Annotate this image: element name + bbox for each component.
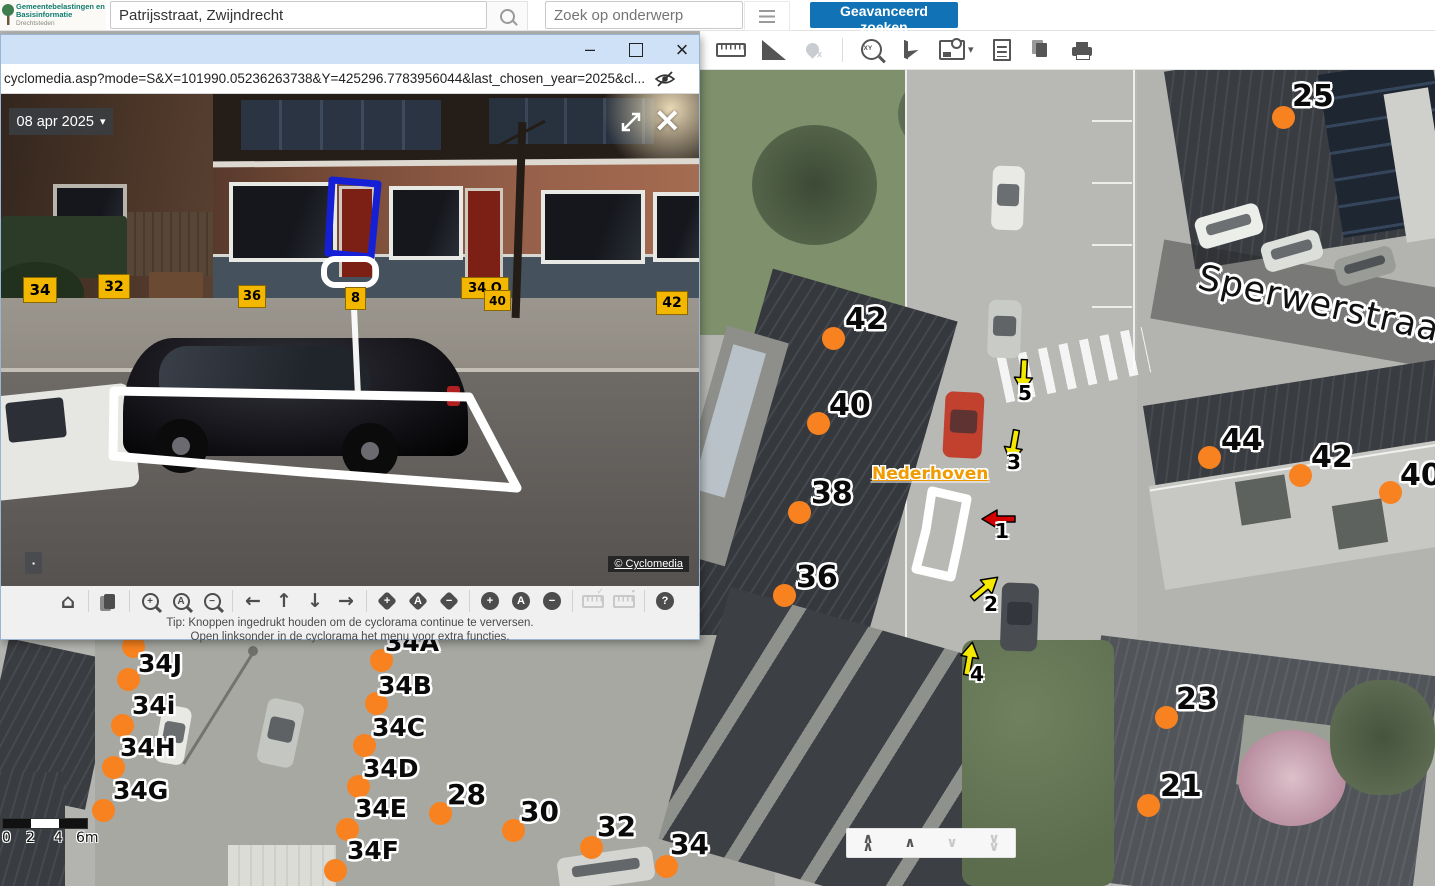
contrast-minus-button[interactable]: − (541, 589, 563, 613)
scalebar-label: 0 (2, 830, 11, 846)
zoom-out-button[interactable]: − (201, 589, 223, 613)
search-icon (500, 9, 515, 24)
toolbar-separator (88, 590, 89, 612)
house-number-tag[interactable]: 32 (98, 274, 130, 299)
map-marker-label: 40 (829, 391, 871, 421)
map-marker-label: 34B (378, 673, 432, 698)
map-marker-dot[interactable] (117, 668, 140, 691)
map-scalebar: 0246m (2, 818, 88, 845)
advanced-search-button[interactable]: Geavanceerd zoeken (810, 2, 958, 28)
map-marker-label: 23 (1176, 685, 1218, 715)
page-first-button[interactable]: ∧∧ (862, 835, 873, 851)
arrow-number-label: 2 (984, 592, 998, 616)
measure-distance-button[interactable] (716, 37, 746, 63)
maximize-icon (629, 43, 643, 57)
map-marker-label: 34F (347, 838, 399, 863)
popup-url[interactable]: cyclomedia.asp?mode=S&X=101990.052362637… (1, 71, 652, 86)
top-bar: Gemeentebelastingen enBasisinformatie Dr… (0, 0, 1435, 31)
map-marker-label: 34J (138, 651, 182, 676)
scalebar-label: 6m (76, 830, 99, 846)
toolbar-separator (366, 590, 367, 612)
map-marker-dot[interactable] (1198, 446, 1221, 469)
help-button[interactable]: ? (654, 589, 676, 613)
cyclomedia-copyright-link[interactable]: © Cyclomedia (608, 556, 689, 572)
photo-annotations (1, 94, 699, 586)
bing-maps-button[interactable] (899, 37, 923, 63)
minimize-button[interactable]: – (579, 39, 601, 61)
map-marker-label: 21 (1160, 772, 1202, 802)
toolbar-separator (842, 38, 843, 62)
map-marker-label: 34 (670, 831, 709, 859)
chevron-down-icon: ▾ (100, 115, 106, 128)
map-pager: ∧∧∧∨∨∨ (846, 828, 1016, 858)
zoom-auto-button[interactable]: A (170, 589, 192, 613)
brightness-auto-button[interactable]: A (407, 589, 429, 613)
map-marker-dot[interactable] (1379, 481, 1402, 504)
map-marker-dot[interactable] (92, 799, 115, 822)
map-marker-label: 42 (845, 305, 887, 335)
report-button[interactable] (990, 37, 1014, 63)
page-up-button[interactable]: ∧ (904, 839, 915, 847)
house-number-tag[interactable]: 8 (345, 287, 366, 310)
print-button[interactable] (1070, 37, 1094, 63)
arrow-number-label: 3 (1007, 450, 1021, 474)
list-icon (759, 10, 775, 23)
popup-url-bar: cyclomedia.asp?mode=S&X=101990.052362637… (1, 64, 699, 94)
toolbar-separator (469, 590, 470, 612)
scalebar-label: 4 (54, 830, 63, 846)
tip-line-2: Open linksonder in de cyclorama het menu… (1, 631, 699, 645)
annotation-parking-polygon (113, 391, 517, 488)
contrast-plus-button[interactable]: + (479, 589, 501, 613)
topic-search-input[interactable] (545, 1, 743, 29)
map-marker-label: 34H (120, 735, 176, 760)
streetview-close-icon[interactable]: × (653, 100, 682, 140)
map-marker-dot[interactable] (1289, 464, 1312, 487)
eye-slash-icon[interactable] (654, 70, 676, 88)
annotation-white-rounded-rect (324, 259, 376, 285)
tip-line-1: Tip: Knoppen ingedrukt houden om de cycl… (1, 617, 699, 631)
popup-titlebar[interactable]: – × (1, 35, 699, 64)
map-toolbar: xXY▾ (700, 30, 1435, 70)
maximize-button[interactable] (625, 39, 647, 61)
scalebar-label: 2 (26, 830, 35, 846)
house-number-tag[interactable]: 34 (23, 277, 57, 303)
map-marker-label: 32 (597, 813, 636, 841)
map-marker-dot[interactable] (1137, 794, 1160, 817)
cyclorama-menu-button[interactable]: ▪ (25, 552, 42, 574)
look-right-button[interactable]: → (335, 589, 357, 613)
measure-confirm-button[interactable]: ✓ (582, 589, 604, 613)
search-button[interactable] (487, 1, 528, 31)
map-marker-label: 25 (1292, 82, 1334, 112)
toolbar-separator (572, 590, 573, 612)
app-logo: Gemeentebelastingen enBasisinformatie Dr… (0, 0, 106, 30)
recording-date-dropdown[interactable]: 08 apr 2025 ▾ (9, 108, 113, 135)
map-marker-dot[interactable] (822, 327, 845, 350)
map-marker-label: 44 (1221, 426, 1263, 456)
map-marker-label: 34G (113, 778, 168, 803)
map-marker-label: 34i (132, 693, 175, 718)
copy-button[interactable] (1030, 37, 1054, 63)
house-number-tag[interactable]: 36 (238, 285, 266, 308)
house-number-tag[interactable]: 40 (484, 290, 511, 311)
brightness-plus-button[interactable]: + (376, 589, 398, 613)
look-down-button[interactable]: ↓ (304, 589, 326, 613)
copy-view-button[interactable] (98, 589, 120, 613)
page-down-button[interactable]: ∨ (946, 839, 957, 847)
measure-save-button[interactable]: ▪ (613, 589, 635, 613)
measure-area-button[interactable] (762, 37, 786, 63)
map-marker-dot[interactable] (324, 859, 347, 882)
look-left-button[interactable]: ← (242, 589, 264, 613)
map-marker-label: 28 (447, 781, 486, 809)
toolbar-separator (644, 590, 645, 612)
map-marker-dot[interactable] (807, 412, 830, 435)
toolbar-separator (129, 590, 130, 612)
application-window: Sperwerstraat Nederhoven 254240383644424… (0, 0, 1435, 886)
map-marker-label: 36 (796, 563, 838, 593)
contrast-auto-button[interactable]: A (510, 589, 532, 613)
streetview-mode-button[interactable]: ▾ (939, 37, 974, 63)
house-number-tag[interactable]: 42 (656, 291, 688, 315)
look-up-button[interactable]: ↑ (273, 589, 295, 613)
map-marker-dot[interactable] (1155, 706, 1178, 729)
toolbar-tips: Tip: Knoppen ingedrukt houden om de cycl… (1, 616, 699, 644)
map-marker-dot[interactable] (788, 501, 811, 524)
map-marker-label: 38 (811, 479, 853, 509)
map-marker-dot[interactable] (773, 584, 796, 607)
logo-tree-icon (2, 1, 14, 27)
close-button[interactable]: × (671, 39, 693, 61)
toolbar-separator (232, 590, 233, 612)
map-marker-label: 40 (1400, 461, 1435, 491)
map-marker-label: 42 (1311, 443, 1353, 473)
arrow-number-label: 4 (970, 662, 984, 686)
streetview-photo[interactable]: 343236834 Q4042 08 apr 2025 ▾ × ▪ © Cycl… (1, 94, 699, 586)
page-last-button[interactable]: ∨∨ (988, 835, 999, 851)
cyclomedia-popup-window: – × cyclomedia.asp?mode=S&X=101990.05236… (0, 34, 700, 640)
arrow-number-label: 5 (1018, 381, 1032, 405)
address-search-input[interactable] (110, 1, 487, 29)
remove-pin-button[interactable]: x (802, 37, 826, 63)
map-marker-label: 34D (363, 756, 419, 781)
map-marker-label: 34C (372, 715, 425, 740)
brightness-minus-button[interactable]: − (438, 589, 460, 613)
street-label-nederhoven[interactable]: Nederhoven (872, 464, 988, 484)
cyclorama-toolbar: ⌂+A−←↑↓→+A−+A−✓▪? (1, 586, 699, 616)
arrow-number-label: 1 (995, 519, 1009, 543)
recording-date-label: 08 apr 2025 (17, 114, 94, 130)
home-button[interactable]: ⌂ (57, 589, 79, 613)
topic-list-button[interactable] (744, 1, 790, 31)
zoom-in-button[interactable]: + (139, 589, 161, 613)
annotation-blue-rectangle (328, 180, 378, 257)
xy-coordinate-search-button[interactable]: XY (859, 37, 883, 63)
map-marker-label: 34E (355, 796, 407, 821)
fullscreen-icon[interactable] (619, 110, 643, 134)
map-marker-label: 30 (520, 798, 559, 826)
